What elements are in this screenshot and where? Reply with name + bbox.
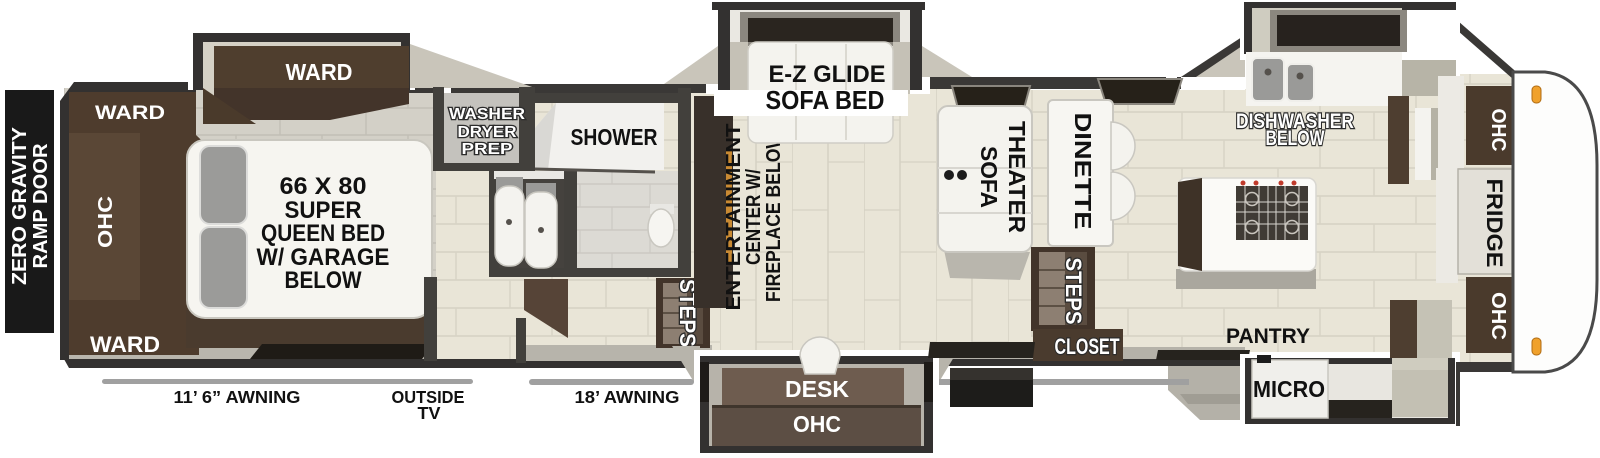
svg-text:18’ AWNING: 18’ AWNING xyxy=(575,387,680,407)
svg-text:ENTERTAINMENT: ENTERTAINMENT xyxy=(723,123,745,310)
svg-text:STEPS: STEPS xyxy=(1061,258,1086,325)
svg-text:SOFA: SOFA xyxy=(976,146,1002,208)
svg-text:BELOW: BELOW xyxy=(285,267,362,294)
svg-text:BELOW: BELOW xyxy=(1266,127,1325,150)
svg-text:CLOSET: CLOSET xyxy=(1055,334,1120,359)
svg-text:FRIDGE: FRIDGE xyxy=(1482,179,1507,268)
svg-text:WASHER: WASHER xyxy=(449,106,525,123)
svg-text:OHC: OHC xyxy=(793,411,841,437)
svg-text:OHC: OHC xyxy=(95,196,117,248)
svg-text:QUEEN BED: QUEEN BED xyxy=(261,220,385,247)
svg-text:11’ 6” AWNING: 11’ 6” AWNING xyxy=(174,387,301,407)
svg-text:SOFA BED: SOFA BED xyxy=(766,85,885,115)
svg-text:PANTRY: PANTRY xyxy=(1226,325,1310,348)
svg-text:OHC: OHC xyxy=(1487,292,1509,340)
svg-text:FIREPLACE BELOW: FIREPLACE BELOW xyxy=(763,132,785,302)
svg-text:THEATER: THEATER xyxy=(1004,121,1030,233)
svg-text:E-Z GLIDE: E-Z GLIDE xyxy=(769,61,886,88)
svg-text:DINETTE: DINETTE xyxy=(1070,113,1096,230)
svg-text:OHC: OHC xyxy=(1487,109,1509,152)
svg-text:DRYER: DRYER xyxy=(458,124,517,141)
svg-text:WARD: WARD xyxy=(286,59,353,85)
svg-text:MICRO: MICRO xyxy=(1253,376,1325,402)
svg-text:DESK: DESK xyxy=(785,376,849,402)
svg-text:RAMP DOOR: RAMP DOOR xyxy=(30,143,52,269)
svg-text:SHOWER: SHOWER xyxy=(571,124,658,150)
svg-text:WARD: WARD xyxy=(95,103,165,124)
svg-text:ZERO GRAVITY: ZERO GRAVITY xyxy=(9,126,31,285)
svg-text:66 X 80: 66 X 80 xyxy=(280,173,367,200)
svg-text:TV: TV xyxy=(418,403,441,423)
svg-text:WARD: WARD xyxy=(90,332,160,357)
svg-text:PREP: PREP xyxy=(462,141,513,158)
svg-text:CENTER W/: CENTER W/ xyxy=(743,169,765,265)
